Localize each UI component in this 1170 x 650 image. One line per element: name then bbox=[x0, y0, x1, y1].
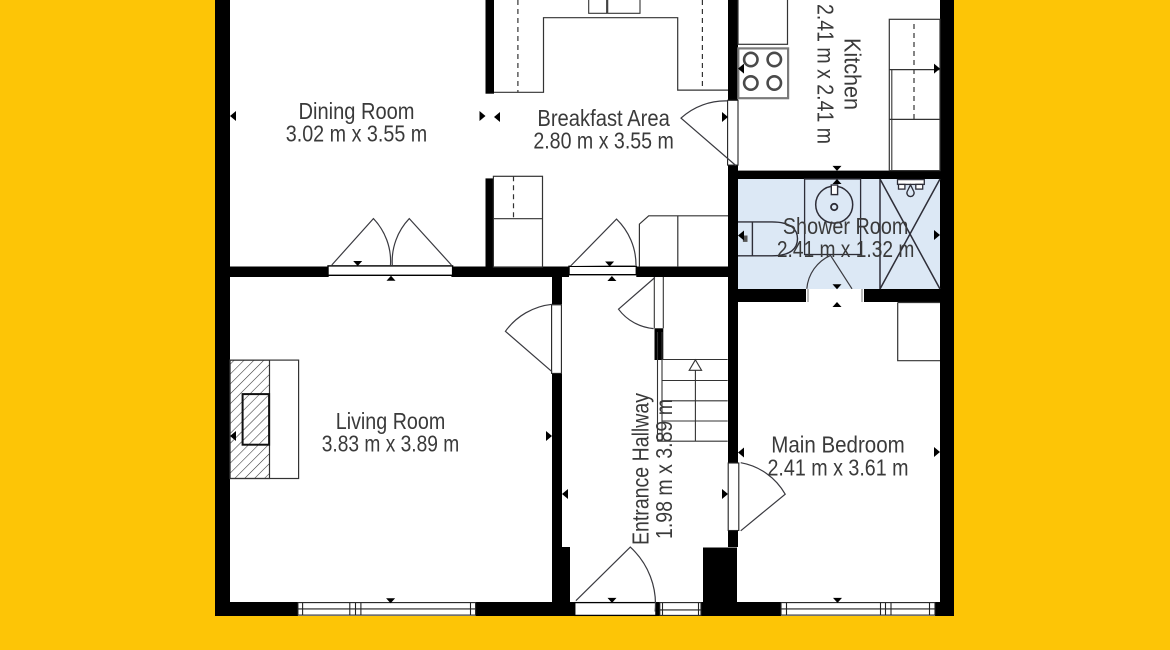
svg-text:3.83 m x 3.89 m: 3.83 m x 3.89 m bbox=[322, 431, 460, 457]
svg-text:2.41 m x 1.32 m: 2.41 m x 1.32 m bbox=[777, 236, 915, 262]
svg-text:Kitchen: Kitchen bbox=[839, 38, 865, 110]
svg-text:2.41 m x 2.41 m: 2.41 m x 2.41 m bbox=[812, 4, 838, 144]
svg-text:3.02 m x 3.55 m: 3.02 m x 3.55 m bbox=[286, 121, 428, 147]
svg-text:2.41 m x 3.61 m: 2.41 m x 3.61 m bbox=[768, 455, 909, 481]
svg-text:1.98 m x 3.89 m: 1.98 m x 3.89 m bbox=[651, 399, 677, 539]
svg-text:Entrance Hallway: Entrance Hallway bbox=[628, 393, 654, 545]
svg-text:2.80 m x 3.55 m: 2.80 m x 3.55 m bbox=[533, 128, 674, 154]
